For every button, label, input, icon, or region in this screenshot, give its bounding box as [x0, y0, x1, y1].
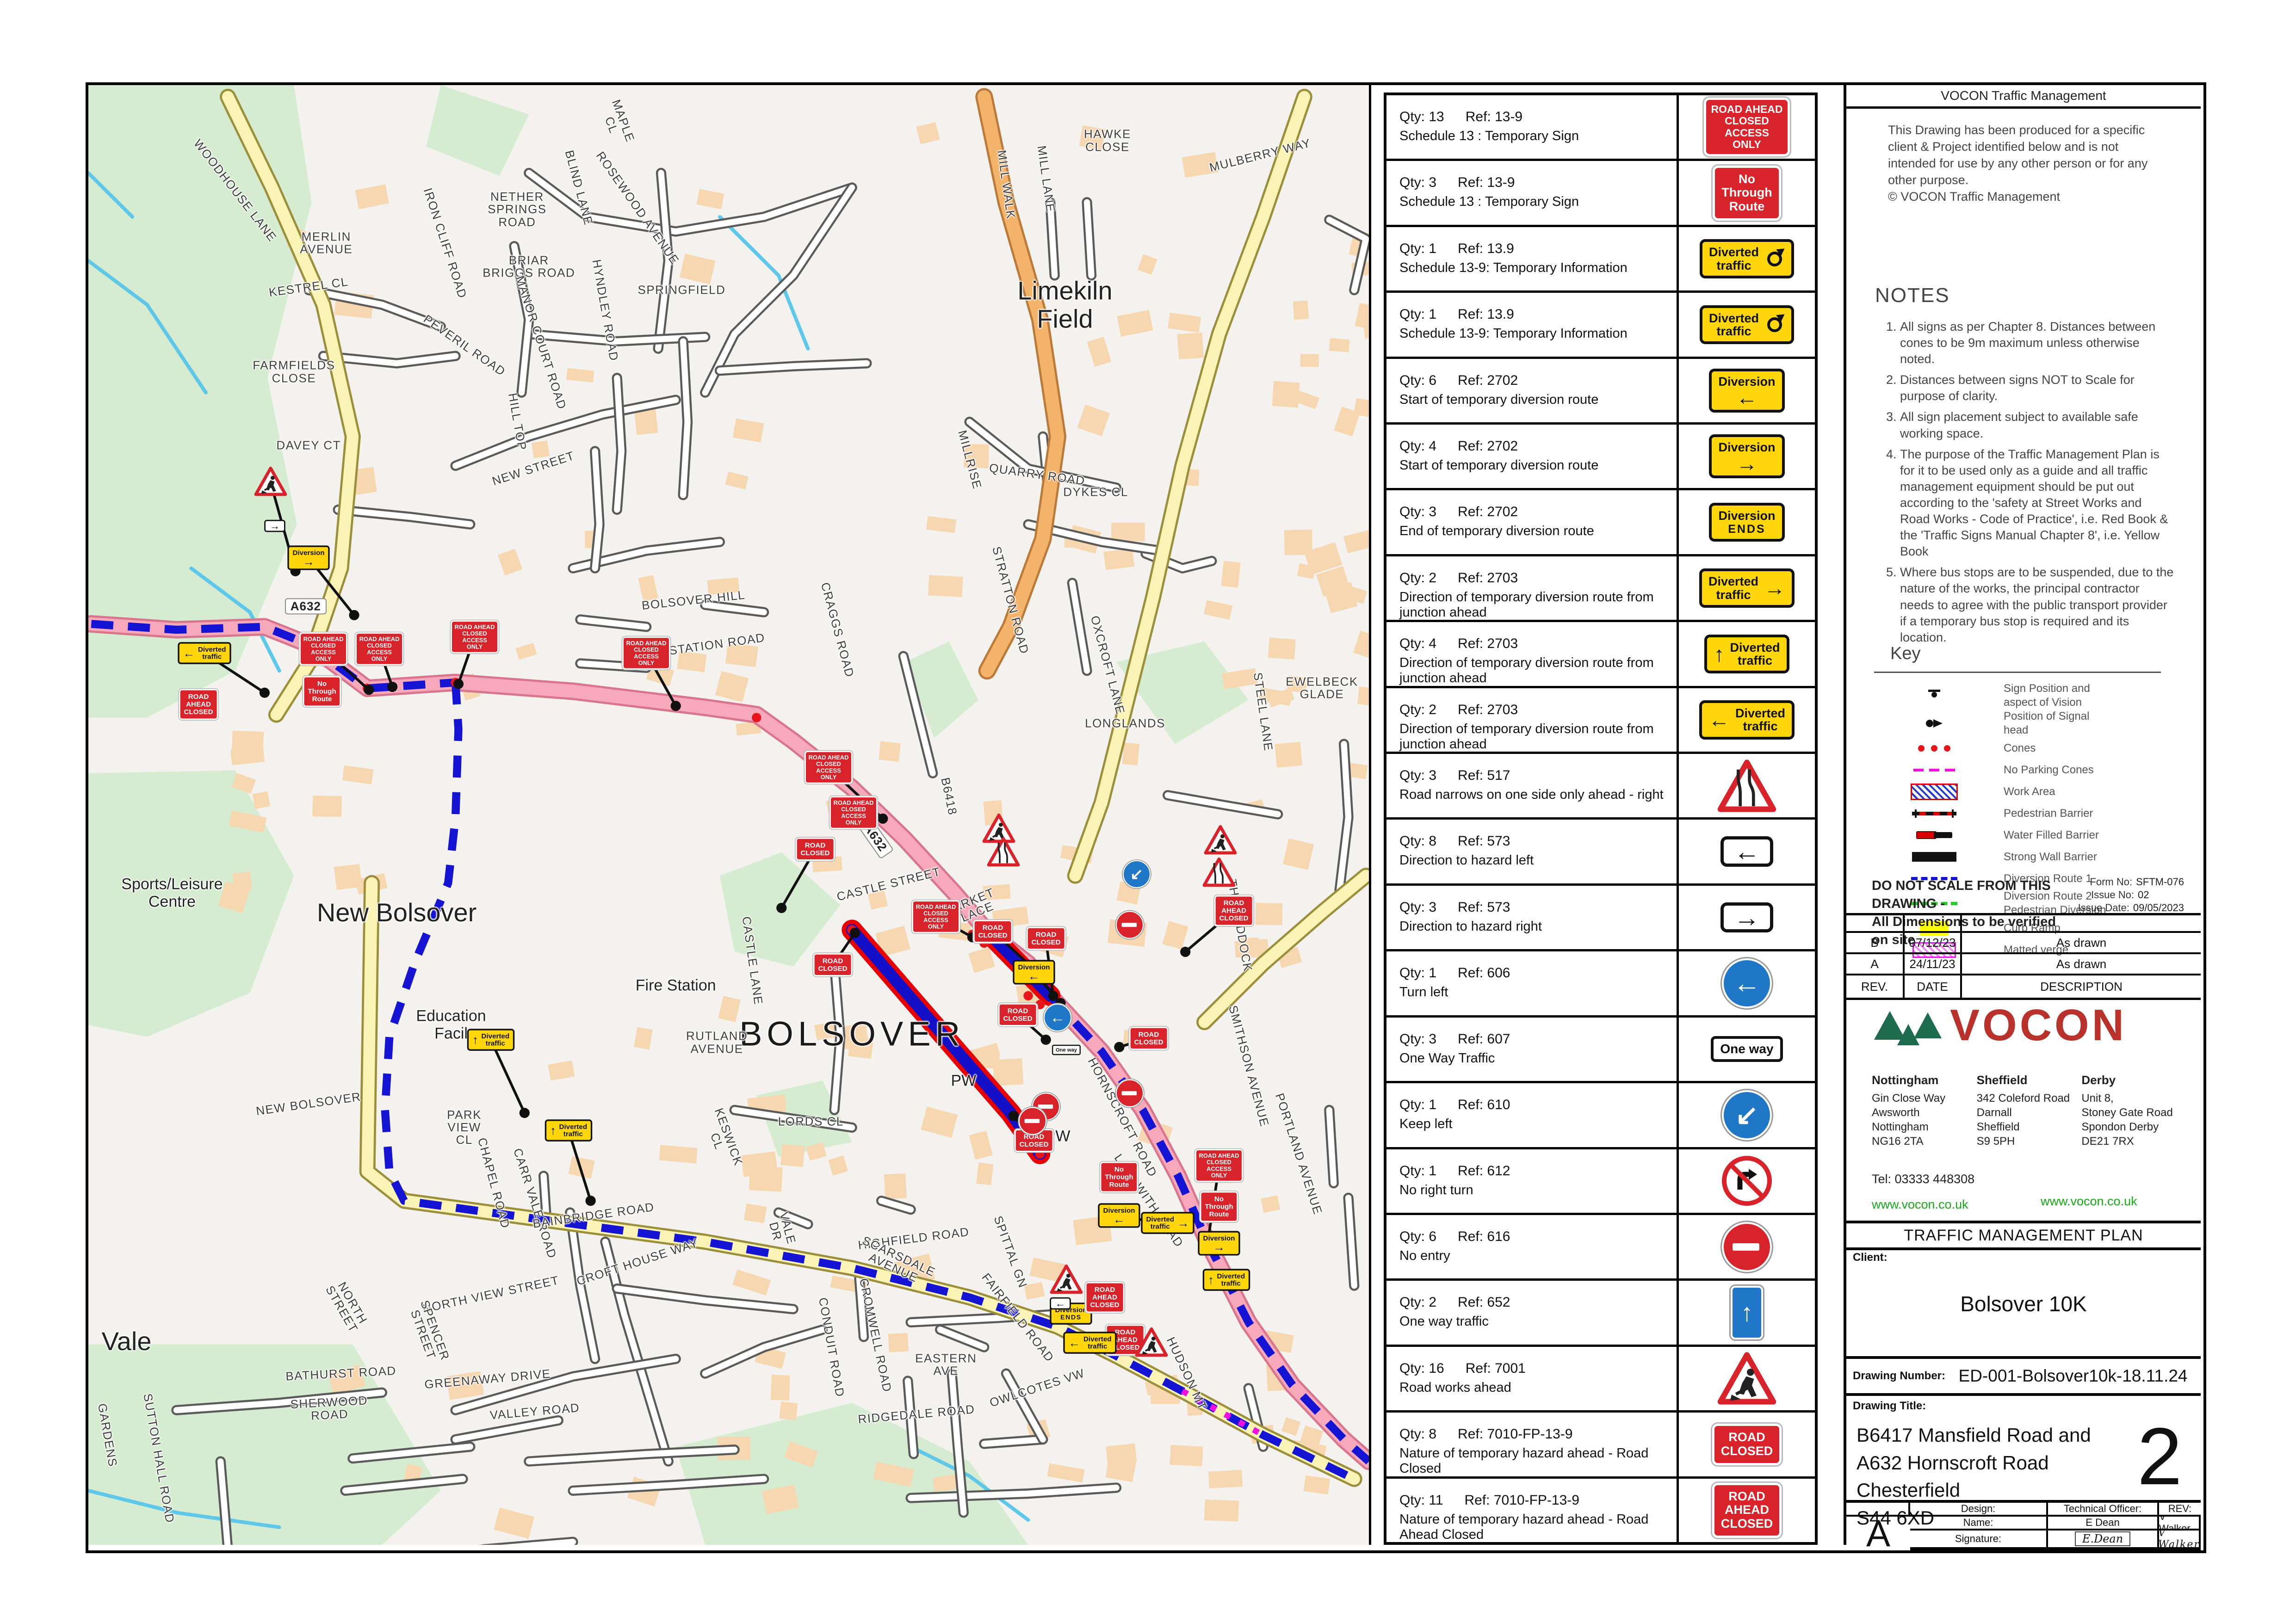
- l2: Schedule 13 : Temporary Sign: [1399, 129, 1672, 144]
- narrows-tri-sign: [1202, 857, 1236, 888]
- technical-officer-label: Technical Officer:: [2048, 1503, 2159, 1517]
- l2: Road narrows on one side only ahead - ri…: [1399, 787, 1672, 802]
- ms: ROAD AHEAD CLOSED: [1214, 895, 1253, 926]
- roadworks-tri-sign: [1049, 1264, 1083, 1295]
- note-item: The purpose of the Traffic Management Pl…: [1900, 446, 2175, 560]
- stext: Qty: 1Ref: 606Turn left: [1386, 951, 1677, 1015]
- sigbox: E.Dean: [2075, 1531, 2130, 1546]
- kicon: [1865, 769, 2004, 771]
- fr: Issue No:02: [2064, 889, 2184, 901]
- approval-table: Design: Technical Officer: REV: Name: E …: [1846, 1500, 2201, 1548]
- ms: ↑Diverted traffic: [1203, 1269, 1250, 1290]
- ms: ROAD AHEAD CLOSED ACCESS ONLY: [451, 621, 499, 654]
- element: [1049, 1264, 1083, 1295]
- road-closed-sign: ROAD CLOSED: [1026, 927, 1065, 950]
- revision-row: B07/12/23As drawn: [1846, 933, 2201, 954]
- l1: Qty: 16Ref: 7001: [1399, 1361, 1672, 1376]
- schedule-row: Qty: 3Ref: 13-9Schedule 13 : Temporary S…: [1386, 161, 1815, 227]
- schedule-sign-cell: [1677, 754, 1815, 817]
- no-entry-sign: [1115, 911, 1143, 938]
- qty: Qty: 2: [1399, 570, 1436, 586]
- note-item: All signs as per Chapter 8. Distances be…: [1900, 319, 2175, 367]
- pedestrian-barrier-icon: [1912, 812, 1956, 815]
- ln: DE21 7RX: [2081, 1134, 2186, 1148]
- office-addresses: NottinghamGin Close WayAwsworthNottingha…: [1872, 1073, 2186, 1149]
- roadworks-tri-sign: [254, 466, 288, 497]
- schedule-sign-cell: No Through Route: [1677, 161, 1815, 224]
- rev-value: A: [1846, 1517, 1910, 1551]
- ref: Ref: 13.9: [1458, 241, 1514, 256]
- element: [1721, 1155, 1772, 1206]
- diverted-left-sign: ←Diverted traffic: [178, 642, 231, 664]
- ln: Awsworth: [1872, 1105, 1977, 1120]
- drawing-number-label: Drawing Number:: [1846, 1370, 1945, 1382]
- ref: Ref: 616: [1458, 1229, 1510, 1244]
- kicon: [1865, 784, 2004, 800]
- l1: Qty: 11Ref: 7010-FP-13-9: [1399, 1493, 1672, 1508]
- t: Diverted traffic: [1217, 1272, 1245, 1287]
- l1: Qty: 1Ref: 606: [1399, 965, 1672, 981]
- t: Diverted traffic: [1708, 575, 1758, 601]
- schedule-sign-cell: ROAD CLOSED: [1677, 1413, 1815, 1476]
- fv: 02: [2138, 889, 2184, 901]
- raca-sign: ROAD AHEAD CLOSED ACCESS ONLY: [299, 632, 347, 665]
- revision-row: A24/11/23As drawn: [1846, 954, 2201, 975]
- schedule-sign-cell: Diverted traffic→: [1677, 556, 1815, 620]
- ln: Gin Close Way: [1872, 1091, 1977, 1105]
- schedule-sign-cell: ↑Diverted traffic: [1677, 622, 1815, 685]
- one-way-plate-sign: One way: [1052, 1045, 1081, 1055]
- fl: Issue No:: [2091, 889, 2134, 901]
- schedule-sign-cell: ←: [1677, 820, 1815, 883]
- element: [986, 836, 1021, 867]
- roadworks-tri-sign: [1134, 1327, 1169, 1358]
- element: [1933, 719, 1943, 728]
- ms: ←: [1050, 1297, 1071, 1309]
- qty: Qty: 3: [1399, 1031, 1436, 1047]
- rbt: [1764, 315, 1785, 335]
- schedule-row: Qty: 1Ref: 612No right turn: [1386, 1149, 1815, 1215]
- office-address: NottinghamGin Close WayAwsworthNottingha…: [1872, 1073, 1977, 1149]
- stext: Qty: 4Ref: 2703Direction of temporary di…: [1386, 622, 1677, 685]
- revision-table: B07/12/23As drawnA24/11/23As drawnREV.DA…: [1846, 913, 2201, 1000]
- l1: Qty: 1Ref: 13.9: [1399, 307, 1672, 322]
- ms: No Through Route: [303, 676, 341, 707]
- form-info: Form No:SFTM-076 Issue No:02 Issue Date:…: [2064, 876, 2184, 915]
- drawing-number-block: Drawing Number: ED-001-Bolsover10k-18.11…: [1846, 1359, 2201, 1396]
- client-label: Client:: [1846, 1247, 2201, 1264]
- stext: Qty: 1Ref: 13.9Schedule 13-9: Temporary …: [1386, 293, 1677, 356]
- rc2: [1905, 915, 1962, 931]
- qty: Qty: 2: [1399, 1295, 1436, 1310]
- ms: [1049, 1264, 1083, 1296]
- ms: ROAD AHEAD CLOSED ACCESS ONLY: [299, 632, 347, 665]
- road-closed-sign: ROAD CLOSED: [813, 953, 852, 976]
- raca-sign: ROAD AHEAD CLOSED ACCESS ONLY: [622, 637, 670, 670]
- ln: Stoney Gate Road: [2081, 1105, 2186, 1120]
- schedule-sign-cell: ROAD AHEAD CLOSED ACCESS ONLY: [1677, 95, 1815, 159]
- ms: ←: [1044, 1004, 1071, 1031]
- panel-header: VOCON Traffic Management: [1846, 85, 2201, 109]
- diverted-up-sign: ↑Diverted traffic: [545, 1119, 593, 1141]
- t: Diverted traffic: [1709, 312, 1759, 338]
- stext: Qty: 2Ref: 2703Direction of temporary di…: [1386, 688, 1677, 752]
- no-entry-sign: [1019, 1107, 1046, 1135]
- ms: ROAD AHEAD CLOSED ACCESS ONLY: [622, 637, 670, 670]
- rbt: [1764, 249, 1785, 269]
- stext: Qty: 3Ref: 607One Way Traffic: [1386, 1018, 1677, 1081]
- qty: Qty: 4: [1399, 438, 1436, 454]
- qty: Qty: 6: [1399, 1229, 1436, 1244]
- qty: Qty: 3: [1399, 175, 1436, 190]
- klabel: Water Filled Barrier: [2004, 828, 2184, 842]
- diverted-up-sign: ↑Diverted traffic: [467, 1029, 514, 1050]
- map-signs-layer: ←Diverted trafficROAD AHEAD CLOSEDROAD A…: [88, 85, 1369, 1545]
- ms: [1115, 911, 1143, 940]
- arr: ←: [1708, 711, 1730, 728]
- schedule-sign-cell: ↙: [1677, 1083, 1815, 1147]
- road-ahead-closed-sign: ROAD AHEAD CLOSED: [179, 689, 218, 720]
- vocon-logo: VOCON: [1874, 1006, 2127, 1045]
- ref: Ref: 2702: [1458, 438, 1518, 454]
- ref: Ref: 13-9: [1458, 175, 1515, 190]
- narrows-tri-sign: [1716, 758, 1777, 814]
- rc3: DESCRIPTION: [1962, 975, 2201, 998]
- l1: Qty: 8Ref: 7010-FP-13-9: [1399, 1426, 1672, 1442]
- ref: Ref: 2702: [1458, 373, 1518, 388]
- design-label: Design:: [1910, 1503, 2048, 1517]
- road-closed-sign: ROAD CLOSED: [796, 838, 835, 861]
- city: Nottingham: [1872, 1073, 1977, 1088]
- road-closed-sign: ROAD CLOSED: [1129, 1027, 1168, 1050]
- stext: Qty: 1Ref: 610Keep left: [1386, 1083, 1677, 1147]
- ref: Ref: 7001: [1466, 1361, 1526, 1376]
- one-way-plate-sign: One way: [1711, 1036, 1782, 1062]
- element: [1121, 1091, 1136, 1095]
- rev-label: REV:: [2159, 1503, 2201, 1517]
- schedule-sign-cell: ROAD AHEAD CLOSED: [1677, 1479, 1815, 1542]
- ref: Ref: 13-9: [1466, 109, 1522, 124]
- schedule-row: Qty: 1Ref: 13.9Schedule 13-9: Temporary …: [1386, 293, 1815, 358]
- diversion-left-sign: Diversion←: [1709, 369, 1784, 413]
- technical-officer-date: 18/11/24: [2159, 1549, 2201, 1551]
- l1: Qty: 4Ref: 2703: [1399, 636, 1672, 652]
- key-item: Cones: [1865, 737, 2184, 759]
- key-title: Key: [1890, 644, 1920, 664]
- ms: No Through Route: [1200, 1191, 1238, 1222]
- ms: [254, 466, 288, 498]
- schedule-row: Qty: 1Ref: 13.9Schedule 13-9: Temporary …: [1386, 227, 1815, 293]
- diversion-left-sign: Diversion←: [1013, 960, 1055, 985]
- turn-left-sign: ←: [1722, 958, 1772, 1008]
- client-name: Bolsover 10K: [1846, 1291, 2201, 1316]
- ln: Sheffield: [1977, 1120, 2082, 1134]
- stext: Qty: 1Ref: 13.9Schedule 13-9: Temporary …: [1386, 227, 1677, 290]
- ms: ROAD AHEAD CLOSED: [1085, 1282, 1124, 1313]
- element: [1926, 720, 1933, 727]
- schedule-row: Qty: 8Ref: 573Direction to hazard left←: [1386, 820, 1815, 885]
- l1: Qty: 4Ref: 2702: [1399, 438, 1672, 454]
- ms: ROAD CLOSED: [796, 838, 835, 861]
- element: [1134, 1327, 1169, 1358]
- l2: One Way Traffic: [1399, 1051, 1672, 1066]
- website-link[interactable]: www.vocon.co.uk: [2041, 1194, 2137, 1209]
- l1: Qty: 3Ref: 607: [1399, 1031, 1672, 1047]
- diversion-right-sign: Diversion→: [1198, 1231, 1240, 1255]
- ms: Diversion←: [1013, 960, 1055, 985]
- ms: ROAD AHEAD CLOSED ACCESS ONLY: [1195, 1149, 1243, 1182]
- design-date: 18/11/24: [2048, 1549, 2159, 1551]
- keep-left-sign: ↙: [1722, 1090, 1772, 1140]
- schedule-row: Qty: 2Ref: 652One way traffic↑: [1386, 1281, 1815, 1346]
- ref: Ref: 2703: [1458, 570, 1518, 586]
- road-closed-sign: ROAD CLOSED: [973, 920, 1012, 943]
- ms: ↑Diverted traffic: [545, 1119, 593, 1141]
- stext: Qty: 3Ref: 573Direction to hazard right: [1386, 886, 1677, 949]
- raca-sign: ROAD AHEAD CLOSED ACCESS ONLY: [1195, 1149, 1243, 1182]
- l2: End of temporary diversion route: [1399, 524, 1672, 539]
- element: [1025, 1119, 1040, 1123]
- revision-row: [1846, 915, 2201, 933]
- ref: Ref: 517: [1458, 768, 1510, 783]
- note-item: All sign placement subject to available …: [1900, 409, 2175, 441]
- qty: Qty: 8: [1399, 833, 1436, 849]
- l2: Road works ahead: [1399, 1380, 1672, 1395]
- klabel: Pedestrian Barrier: [2004, 807, 2184, 821]
- ms: ROAD AHEAD CLOSED ACCESS ONLY: [355, 632, 403, 665]
- key-item: Work Area: [1865, 781, 2184, 802]
- ref: Ref: 652: [1458, 1295, 1510, 1310]
- rc2: 24/11/23: [1905, 954, 1962, 974]
- l1: Qty: 1Ref: 610: [1399, 1097, 1672, 1113]
- schedule-row: Qty: 6Ref: 616No entry: [1386, 1215, 1815, 1281]
- design-name: E Dean: [2048, 1517, 2159, 1530]
- ref: Ref: 13.9: [1458, 307, 1514, 322]
- no-through-sign: No Through Route: [1100, 1162, 1139, 1193]
- arr: ↑: [550, 1126, 556, 1135]
- qty: Qty: 16: [1399, 1361, 1444, 1376]
- ms: [1202, 857, 1236, 889]
- rc2: DATE: [1905, 975, 1962, 998]
- diverted-rbt2-sign: Diverted traffic: [1700, 305, 1794, 345]
- ms: ROAD AHEAD CLOSED ACCESS ONLY: [805, 751, 853, 784]
- schedule-row: Qty: 2Ref: 2703Direction of temporary di…: [1386, 688, 1815, 754]
- l2: Schedule 13-9: Temporary Information: [1399, 260, 1672, 276]
- schedule-row: Qty: 1Ref: 610Keep left↙: [1386, 1083, 1815, 1149]
- map-area: Limekiln FieldNew BolsoverBOLSOVERSports…: [88, 85, 1371, 1545]
- road-ahead-closed-sign: ROAD AHEAD CLOSED: [1712, 1483, 1782, 1538]
- stext: Qty: 3Ref: 13-9Schedule 13 : Temporary S…: [1386, 161, 1677, 224]
- qty: Qty: 3: [1399, 768, 1436, 783]
- element: [1733, 1243, 1759, 1251]
- ms: ROAD AHEAD CLOSED ACCESS ONLY: [829, 796, 878, 829]
- ms: ←Diverted traffic: [1063, 1332, 1116, 1353]
- disclaimer-text: This Drawing has been produced for a spe…: [1888, 122, 2166, 205]
- key-item: Pedestrian Barrier: [1865, 802, 2184, 824]
- date-label: Date:: [1910, 1549, 2048, 1551]
- qty: Qty: 1: [1399, 241, 1436, 256]
- kicon: [1865, 719, 2004, 728]
- sign-schedule-table: Qty: 13Ref: 13-9Schedule 13 : Temporary …: [1384, 93, 1818, 1545]
- key-divider: [1874, 672, 2161, 673]
- schedule-row: Qty: 4Ref: 2702Start of temporary divers…: [1386, 425, 1815, 490]
- ms: ROAD CLOSED: [998, 1003, 1037, 1026]
- schedule-row: Qty: 3Ref: 2702End of temporary diversio…: [1386, 490, 1815, 556]
- l2: Turn left: [1399, 985, 1672, 1000]
- stext: Qty: 6Ref: 616No entry: [1386, 1215, 1677, 1278]
- l2: Start of temporary diversion route: [1399, 392, 1672, 407]
- signal-head-icon: [1926, 719, 1943, 728]
- stext: Qty: 8Ref: 573Direction to hazard left: [1386, 820, 1677, 883]
- signature-label: Signature:: [1910, 1530, 2048, 1549]
- drawing-number: ED-001-Bolsover10k-18.11.24: [1945, 1366, 2201, 1386]
- key-item: Sign Position and aspect of Vision: [1865, 682, 2184, 710]
- raca-sign: ROAD AHEAD CLOSED ACCESS ONLY: [829, 796, 878, 829]
- kicon: [1865, 812, 2004, 815]
- arr: ↑: [1714, 646, 1724, 663]
- element: [1913, 769, 1924, 771]
- qty: Qty: 8: [1399, 1426, 1436, 1442]
- diverted-up-sign: ↑Diverted traffic: [1203, 1269, 1250, 1290]
- kicon: [1865, 831, 2004, 839]
- schedule-sign-cell: Diverted traffic: [1677, 227, 1815, 290]
- note-item: Where bus stops are to be suspended, due…: [1900, 564, 2175, 645]
- road-closed-sign: ROAD CLOSED: [1712, 1424, 1782, 1465]
- arr: ←: [1736, 389, 1758, 406]
- schedule-sign-cell: Diverted traffic: [1677, 293, 1815, 356]
- note-item: Distances between signs NOT to Scale for…: [1900, 372, 2175, 404]
- logo-wordmark: VOCON: [1950, 1006, 2127, 1045]
- diverted-up-sign: ↑Diverted traffic: [1704, 635, 1789, 674]
- key-item: No Parking Cones: [1865, 759, 2184, 781]
- water-filled-barrier-icon: [1916, 831, 1952, 839]
- l2: Direction of temporary diversion route f…: [1399, 590, 1672, 620]
- qty: Qty: 4: [1399, 636, 1436, 651]
- schedule-row: Qty: 4Ref: 2703Direction of temporary di…: [1386, 622, 1815, 688]
- approval-cell: [1846, 1503, 1910, 1517]
- ms: ↑Diverted traffic: [467, 1029, 514, 1050]
- ref: Ref: 7010-FP-13-9: [1464, 1493, 1579, 1508]
- raca-sign: ROAD AHEAD CLOSED ACCESS ONLY: [912, 900, 960, 933]
- l1: Qty: 3Ref: 517: [1399, 768, 1672, 784]
- fr: Issue Date:09/05/2023: [2064, 902, 2184, 914]
- schedule-sign-cell: ←: [1677, 951, 1815, 1015]
- arr: ↑: [472, 1035, 478, 1045]
- element: [254, 466, 288, 497]
- t: Diverted traffic: [559, 1123, 588, 1138]
- stext: Qty: 16Ref: 7001Road works ahead: [1386, 1347, 1677, 1410]
- klabel: No Parking Cones: [2004, 763, 2184, 777]
- schedule-row: Qty: 16Ref: 7001Road works ahead: [1386, 1347, 1815, 1413]
- fl: Issue Date:: [2078, 902, 2129, 914]
- city: Sheffield: [1977, 1073, 2082, 1088]
- l1: Qty: 6Ref: 2702: [1399, 373, 1672, 389]
- ms: [1203, 824, 1238, 857]
- schedule-row: Qty: 13Ref: 13-9Schedule 13 : Temporary …: [1386, 95, 1815, 161]
- technical-officer-name: V Walker: [2159, 1517, 2201, 1530]
- ms: ROAD CLOSED: [1129, 1027, 1168, 1050]
- ln: Unit 8,: [2081, 1091, 2186, 1105]
- ref: Ref: 610: [1458, 1097, 1510, 1112]
- arr: ←: [1028, 971, 1040, 981]
- fv: 09/05/2023: [2133, 902, 2184, 914]
- schedule-sign-cell: One way: [1677, 1018, 1815, 1081]
- technical-officer-signature: V Walker: [2159, 1530, 2201, 1549]
- hazard-right-sign: →: [1720, 902, 1773, 933]
- ln: 342 Coleford Road: [1977, 1091, 2082, 1105]
- ms: →: [264, 520, 285, 532]
- ms: Diversion←: [1098, 1203, 1140, 1228]
- qty: Qty: 1: [1399, 307, 1436, 322]
- rc1: A: [1846, 954, 1905, 974]
- logo-triangle-icon: [1914, 1012, 1942, 1038]
- ends: ENDS: [1060, 1314, 1082, 1321]
- t: Diversion: [1718, 509, 1775, 522]
- design-signature: E.Dean: [2048, 1530, 2159, 1549]
- roadworks-tri-sign: [1203, 824, 1238, 855]
- t: Diverted traffic: [1735, 707, 1785, 733]
- name-label: Name:: [1910, 1517, 2048, 1530]
- no-entry-sign: [1722, 1222, 1772, 1272]
- ln: S9 5PH: [1977, 1134, 2082, 1148]
- qty: Qty: 1: [1399, 1163, 1436, 1179]
- ln: NG16 2TA: [1872, 1134, 1977, 1148]
- qty: Qty: 1: [1399, 965, 1436, 981]
- ms: [1115, 1079, 1143, 1108]
- l1: Qty: 1Ref: 13.9: [1399, 241, 1672, 257]
- schedule-sign-cell: ↑: [1677, 1281, 1815, 1344]
- sig2: V Walker: [2159, 1530, 2200, 1549]
- website-link[interactable]: www.vocon.co.uk: [1872, 1197, 1968, 1212]
- no-entry-sign: [1115, 1079, 1143, 1107]
- plan-type-bar: TRAFFIC MANAGEMENT PLAN: [1846, 1221, 2201, 1250]
- l1: Qty: 3Ref: 13-9: [1399, 175, 1672, 191]
- t: Diverted traffic: [1730, 641, 1780, 667]
- ref: Ref: 573: [1458, 833, 1510, 849]
- l2: Nature of temporary hazard ahead - Road …: [1399, 1512, 1672, 1543]
- fl: Form No:: [2090, 876, 2132, 888]
- cones-icon: [1918, 745, 1950, 752]
- hazard-left-sign: ←: [1720, 836, 1773, 867]
- arr: →: [303, 557, 315, 567]
- l1: Qty: 13Ref: 13-9: [1399, 109, 1672, 125]
- stext: Qty: 3Ref: 2702End of temporary diversio…: [1386, 490, 1677, 554]
- ms: ROAD CLOSED: [973, 920, 1012, 943]
- sign-position-icon: [1927, 690, 1941, 702]
- stext: Qty: 2Ref: 652One way traffic: [1386, 1281, 1677, 1344]
- ms: Diversion→: [1198, 1231, 1240, 1255]
- element: [1202, 857, 1236, 888]
- drawing-title-label: Drawing Title:: [1846, 1396, 2201, 1413]
- t: Diverted traffic: [198, 646, 226, 660]
- element: [1720, 762, 1773, 809]
- arr: →: [1764, 580, 1785, 597]
- no-right-turn-sign: [1721, 1155, 1772, 1206]
- schedule-sign-cell: [1677, 1347, 1815, 1410]
- element: [1204, 859, 1234, 885]
- stext: Qty: 13Ref: 13-9Schedule 13 : Temporary …: [1386, 95, 1677, 159]
- road-ahead-closed-sign: ROAD AHEAD CLOSED: [1085, 1282, 1124, 1313]
- l2: Schedule 13 : Temporary Sign: [1399, 194, 1672, 210]
- qty: Qty: 1: [1399, 1097, 1436, 1112]
- qty: Qty: 6: [1399, 373, 1436, 388]
- schedule-row: Qty: 8Ref: 7010-FP-13-9Nature of tempora…: [1386, 1413, 1815, 1478]
- element: [1747, 1369, 1754, 1376]
- office-address: Sheffield342 Coleford RoadDarnallSheffie…: [1977, 1073, 2082, 1149]
- arr: →: [1213, 1242, 1225, 1252]
- l1: Qty: 1Ref: 612: [1399, 1163, 1672, 1179]
- qty: Qty: 2: [1399, 702, 1436, 717]
